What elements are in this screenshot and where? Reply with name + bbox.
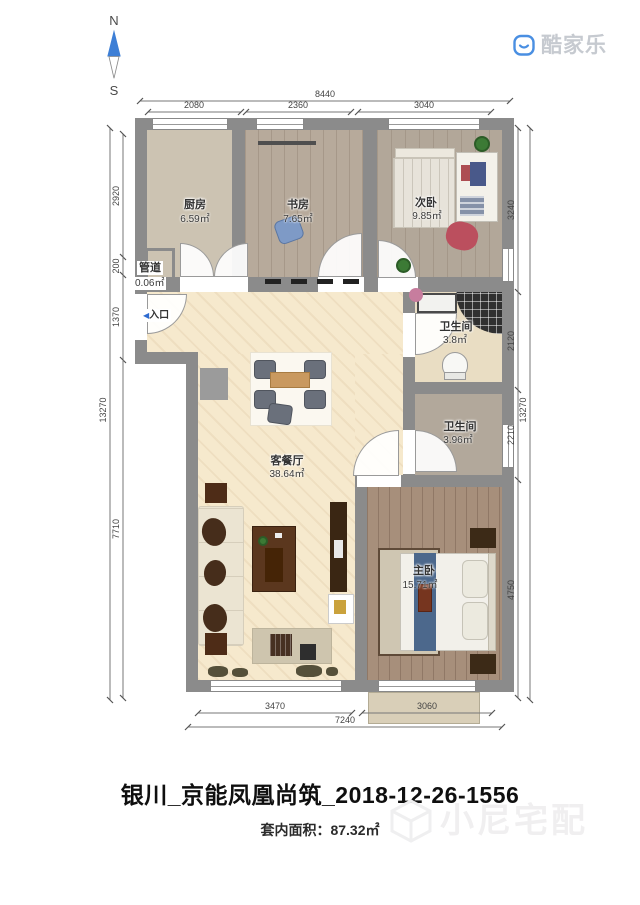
area-bath2: 3.96㎡ [443, 436, 472, 446]
dining-chair [304, 390, 326, 409]
dining-table [270, 372, 310, 388]
dim-left-total: 13270 [98, 397, 108, 422]
dining-chair [267, 402, 294, 425]
dim-left-seg: 7710 [111, 519, 121, 539]
living-side-table-top [205, 483, 227, 503]
window-bedroom2-east [502, 248, 514, 282]
dim-top-seg: 2080 [184, 100, 204, 110]
area-living: 38.64㎡ [269, 470, 304, 480]
bedroom2-wardrobe-stack [460, 196, 484, 216]
living-rug [252, 628, 332, 664]
wall-between-baths [415, 382, 514, 394]
area-study: 7.65㎡ [283, 215, 312, 225]
entrance-label-text: 入口 [149, 310, 169, 321]
area-bath1: 3.8㎡ [443, 336, 467, 346]
dim-left-seg: 200 [111, 258, 121, 273]
bedroom2-wardrobe-clothes-red [461, 165, 470, 181]
label-duct: 管道 [137, 261, 163, 275]
bedroom2-plant2-icon [396, 258, 411, 273]
window-sill-plant-icon [296, 665, 322, 677]
label-bath2: 卫生间 [444, 422, 477, 433]
watermark-cube-icon [388, 798, 434, 844]
bath2-door-opening [403, 430, 415, 474]
label-living: 客餐厅 [271, 456, 304, 467]
master-nightstand-bottom [470, 654, 496, 674]
window-bath2-east [502, 424, 514, 468]
wall-living-master [355, 487, 367, 692]
window-master-balcony [378, 680, 476, 692]
window-sill-plant-icon [208, 666, 228, 677]
master-nightstand-top [470, 528, 496, 548]
wall-right [502, 118, 514, 692]
master-pillow [462, 560, 488, 598]
study-desk [258, 141, 316, 145]
living-pillar [200, 368, 228, 400]
window-sill-plant-icon [326, 667, 338, 676]
area-duct: 0.06㎡ [133, 277, 166, 290]
area-kitchen: 6.59㎡ [180, 215, 209, 225]
watermark-text: 小尼宅配 [440, 804, 588, 838]
bedroom2-headboard [395, 148, 455, 158]
watermark: 小尼宅配 [388, 798, 588, 844]
bath1-toilet-tank [444, 372, 466, 380]
bath1-flower-decor [409, 288, 423, 302]
window-sill-plant-icon [232, 668, 248, 677]
living-side-table-bottom [205, 633, 227, 655]
area-bedroom2: 9.85㎡ [412, 212, 441, 222]
dim-left-seg: 1370 [111, 307, 121, 327]
entrance-label: ◀入口 [141, 309, 171, 322]
bedroom2-plant-icon [474, 136, 490, 152]
dim-bottom-seg: 3470 [265, 701, 285, 711]
floorplan: 厨房 6.59㎡ 书房 7.65㎡ 次卧 9.85㎡ 卫生间 3.8㎡ 卫生间 … [0, 0, 640, 905]
tv-screen [334, 540, 343, 558]
balcony-floor [368, 692, 480, 724]
dim-left-seg: 2920 [111, 186, 121, 206]
master-headboard [488, 553, 496, 651]
living-rug-item [270, 634, 292, 656]
window-study [256, 118, 304, 130]
coffee-table-plant-icon [258, 536, 268, 546]
label-study: 书房 [287, 200, 309, 211]
window-kitchen [152, 118, 228, 130]
wall-study-bedroom2 [363, 130, 377, 277]
bath1-sink [417, 293, 457, 313]
kitchen-door-opening [180, 277, 248, 292]
living-rug-item2 [300, 644, 316, 660]
master-pillow [462, 602, 488, 640]
label-bath1: 卫生间 [440, 322, 473, 333]
dim-top-total: 8440 [315, 89, 335, 99]
label-kitchen: 厨房 [184, 200, 206, 211]
coffee-table-item [275, 533, 282, 538]
study-radiator [265, 279, 361, 284]
label-master: 主卧 [413, 566, 435, 577]
dim-right-total: 13270 [518, 397, 528, 422]
label-bedroom2: 次卧 [415, 198, 437, 209]
dim-bottom-total: 7240 [335, 715, 355, 725]
living-cabinet-item [334, 600, 346, 614]
dim-top-seg: 2360 [288, 100, 308, 110]
window-bedroom2 [388, 118, 480, 130]
area-master: 15.71㎡ [402, 581, 437, 591]
coffee-table-tray [265, 548, 283, 582]
master-door-opening [357, 475, 401, 487]
bedroom2-wardrobe-clothes-blue [470, 162, 486, 186]
wall-left-lower [186, 352, 198, 692]
dim-top-seg: 3040 [414, 100, 434, 110]
window-living-south [210, 680, 342, 692]
bath1-door-opening [403, 313, 415, 357]
